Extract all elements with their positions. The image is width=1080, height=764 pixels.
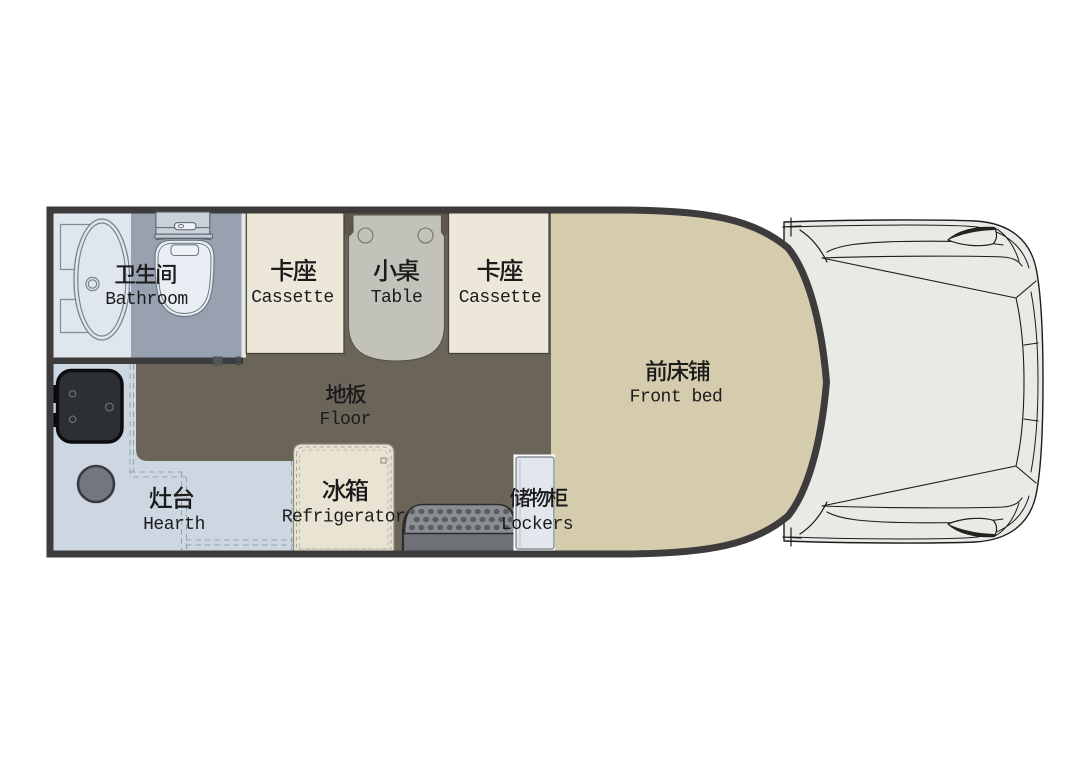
svg-text:Cassette: Cassette xyxy=(459,288,541,308)
svg-text:Hearth: Hearth xyxy=(143,515,205,535)
svg-text:Front bed: Front bed xyxy=(630,388,723,408)
svg-text:Floor: Floor xyxy=(319,410,371,430)
svg-text:Cassette: Cassette xyxy=(251,288,333,308)
svg-text:Table: Table xyxy=(371,288,423,308)
svg-text:Refrigerator: Refrigerator xyxy=(282,508,406,528)
svg-text:Bathroom: Bathroom xyxy=(105,290,187,310)
svg-text:Lockers: Lockers xyxy=(501,515,573,535)
